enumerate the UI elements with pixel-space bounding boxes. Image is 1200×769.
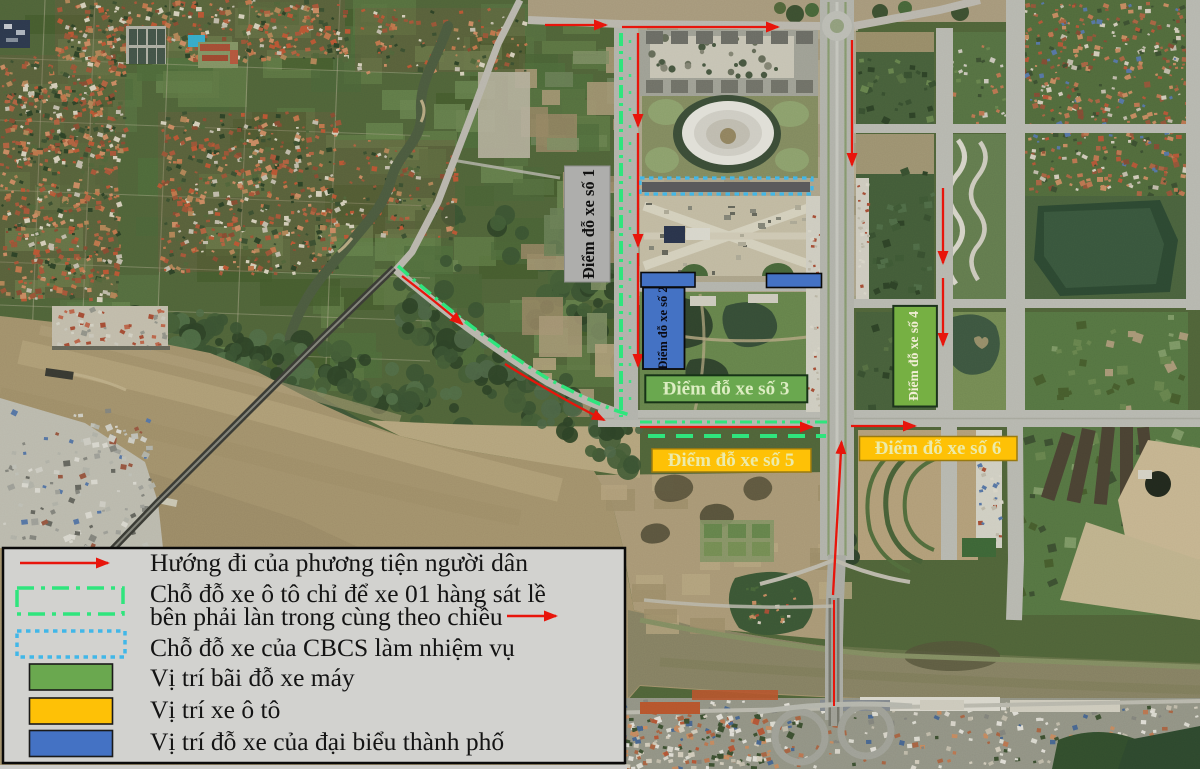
svg-text:Điểm đỗ xe số 6: Điểm đỗ xe số 6 bbox=[875, 438, 1002, 459]
svg-text:Vị trí đỗ xe của đại biểu thàn: Vị trí đỗ xe của đại biểu thành phố bbox=[150, 727, 504, 756]
svg-text:Vị trí bãi đỗ xe máy: Vị trí bãi đỗ xe máy bbox=[150, 663, 355, 692]
svg-text:Điểm đỗ xe số 4: Điểm đỗ xe số 4 bbox=[906, 311, 921, 401]
svg-text:bên phải làn trong cùng theo c: bên phải làn trong cùng theo chiều bbox=[150, 602, 503, 631]
svg-text:Chỗ đỗ xe của CBCS làm nhiệm v: Chỗ đỗ xe của CBCS làm nhiệm vụ bbox=[150, 633, 515, 662]
svg-text:Điểm đỗ xe số 1: Điểm đỗ xe số 1 bbox=[579, 169, 598, 279]
svg-text:Điểm đỗ xe số 5: Điểm đỗ xe số 5 bbox=[668, 450, 795, 471]
svg-text:Điểm đỗ xe số 2: Điểm đỗ xe số 2 bbox=[656, 286, 670, 369]
svg-text:Vị trí xe ô tô: Vị trí xe ô tô bbox=[150, 695, 280, 724]
svg-text:Hướng đi của phương tiện người: Hướng đi của phương tiện người dân bbox=[150, 548, 528, 577]
svg-text:Điểm đỗ xe số 3: Điểm đỗ xe số 3 bbox=[663, 378, 790, 399]
